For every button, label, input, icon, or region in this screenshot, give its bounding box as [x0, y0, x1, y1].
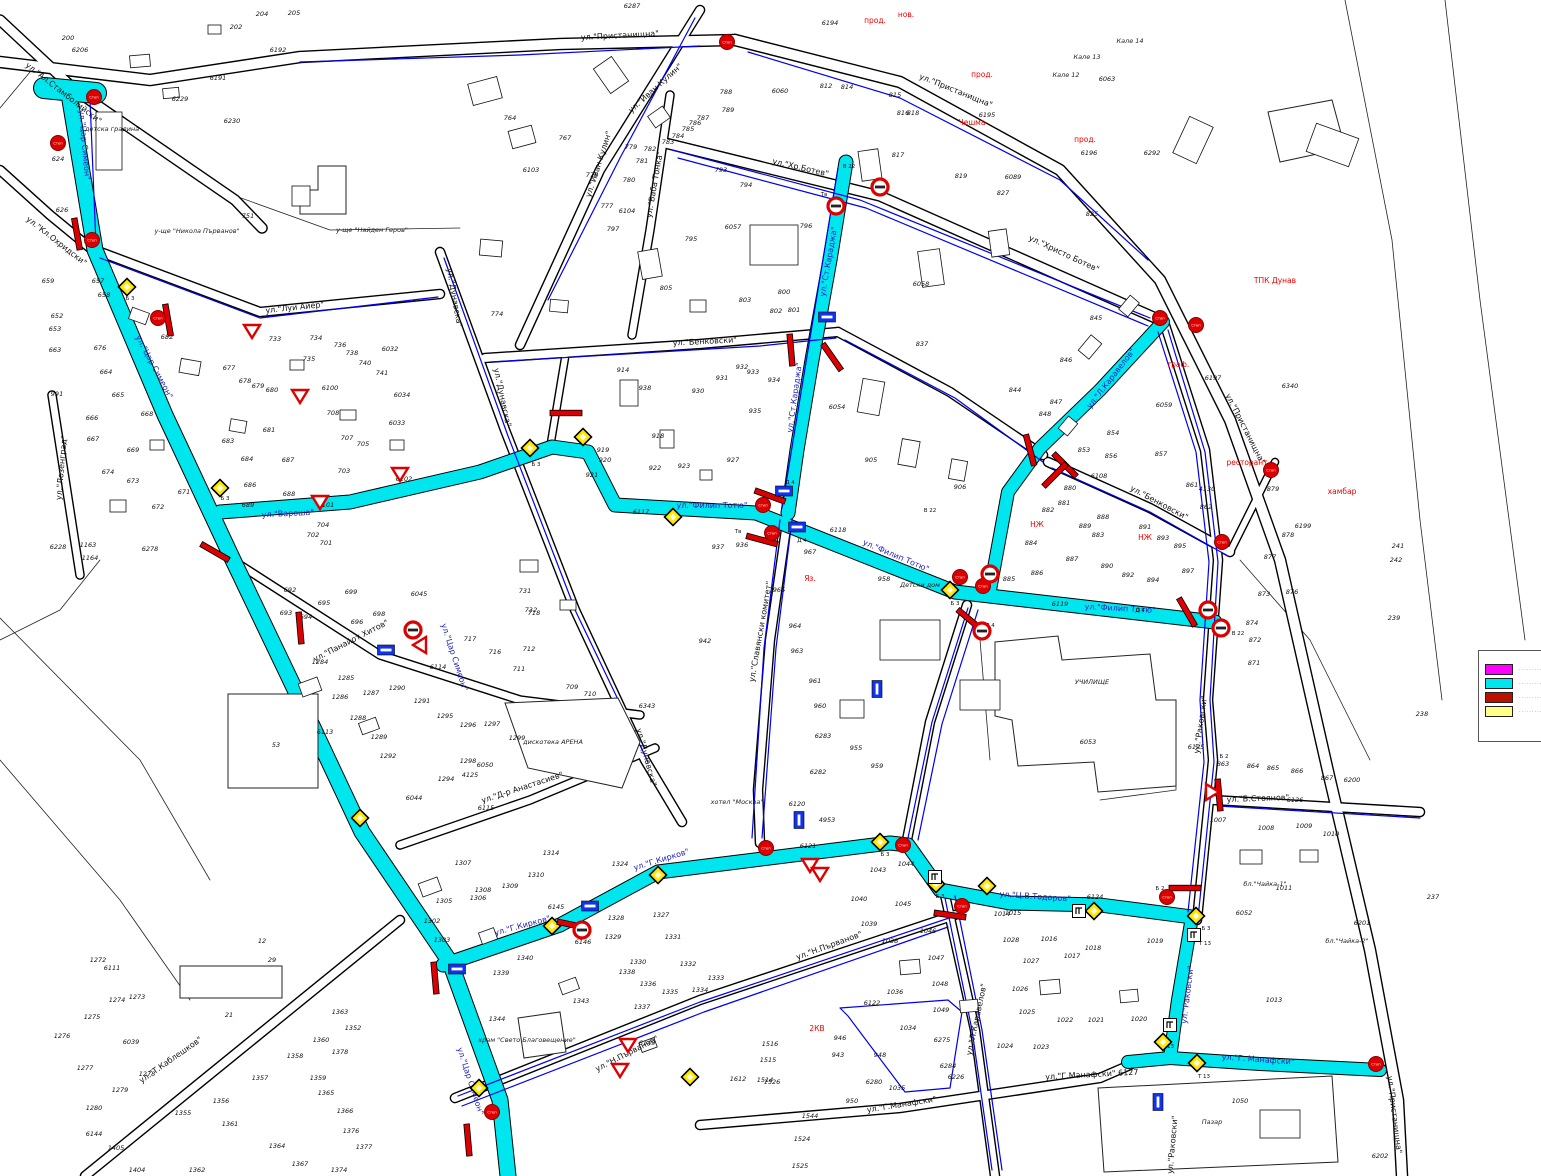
legend: ····· ··································… [1478, 650, 1541, 742]
building [858, 149, 882, 181]
parcel-number-label: 880 [1064, 484, 1076, 492]
parcel-number-label: 6124 [1087, 893, 1104, 901]
parcel-number-label: 6191 [210, 74, 227, 82]
parcel-number-label: 689 [242, 501, 254, 509]
parcel-number-label: 6115 [478, 804, 495, 812]
parcel-number-label: 865 [1267, 764, 1279, 772]
parcel-number-label: 21 [225, 1011, 233, 1019]
parcel-number-label: 734 [310, 334, 322, 342]
parcel-number-label: 6044 [406, 794, 423, 802]
legend-item: ············· [1485, 664, 1541, 675]
parcel-number-label: 780 [623, 176, 635, 184]
building [898, 439, 920, 468]
sign-code-label: Б 3 [935, 894, 945, 900]
parcel-number-label: 6292 [1144, 149, 1161, 157]
parcel-number-label: 872 [1249, 636, 1261, 644]
yield-sign-icon [413, 637, 426, 653]
parcel-number-label: 6206 [72, 46, 89, 54]
parcel-number-label: 887 [1066, 555, 1079, 563]
parcel-number-label: 659 [42, 277, 54, 285]
parcel-number-label: 1404 [129, 1166, 146, 1174]
parcel-number-label: 789 [722, 106, 734, 114]
building [518, 1012, 566, 1058]
parcel-number-label: 818 [907, 109, 919, 117]
parcel-number-label: 1332 [680, 960, 697, 968]
stop-sign-icon: Стоп [1155, 316, 1165, 320]
parcel-number-label: 6058 [913, 280, 930, 288]
red-note-label: ресторант [1226, 458, 1268, 467]
parcel-number-label: 6228 [50, 543, 67, 551]
stop-sign-icon: Стоп [761, 846, 771, 850]
parcel-number-label: 733 [269, 335, 281, 343]
building [1260, 1110, 1300, 1138]
parcel-number-label: 1525 [792, 1162, 809, 1170]
parcel-number-label: 677 [223, 364, 236, 372]
parcel-number-label: 959 [871, 762, 883, 770]
parcel-number-label: 6034 [394, 391, 411, 399]
parcel-number-label: 817 [892, 151, 905, 159]
parcel-number-label: 946 [834, 1034, 846, 1042]
parcel-number-label: 1287 [363, 689, 380, 697]
parcel-number-label: 797 [607, 225, 620, 233]
parcel-number-label: 961 [809, 677, 821, 685]
parcel-number-label: 1025 [1019, 1008, 1036, 1016]
parcel-number-label: 6118 [830, 526, 847, 534]
sign-code-label: Б 3 [531, 462, 541, 468]
parcel-number-label: 6054 [829, 403, 846, 411]
parcel-number-label: 237 [1427, 893, 1440, 901]
parcel-number-label: 1288 [350, 714, 367, 722]
parcel-number-label: 930 [692, 387, 704, 395]
parcel-number-label: 6199 [1295, 522, 1312, 530]
legend-swatch [1485, 706, 1513, 717]
red-note-label: НЖ [1138, 533, 1152, 542]
parcel-number-label: 802 [770, 307, 782, 315]
parcel-number-label: 862 [1200, 503, 1212, 511]
parcel-number-label: 1515 [760, 1056, 777, 1064]
parcel-number-label: 710 [584, 690, 596, 698]
stop-sign-icon: Стоп [957, 904, 967, 908]
building [840, 700, 864, 718]
parcel-number-label: 709 [566, 683, 578, 691]
parcel-number-label: 6104 [619, 207, 636, 215]
building [130, 54, 151, 68]
stop-sign-icon: Стоп [1191, 323, 1201, 327]
parcel-number-label: 6033 [389, 419, 406, 427]
parcel-number-label: 1544 [802, 1112, 819, 1120]
one-way-sign-icon [822, 316, 833, 319]
parcel-number-label: 1328 [608, 914, 625, 922]
parcel-number-label: 801 [788, 306, 800, 314]
building [479, 239, 502, 257]
parcel-number-label: 1377 [356, 1143, 373, 1151]
building [340, 410, 356, 420]
stop-sign-icon: Стоп [487, 1110, 497, 1114]
parcel-number-label: 6201 [1354, 919, 1371, 927]
parcel-number-label: 202 [230, 23, 242, 31]
road [550, 358, 565, 448]
map-svg: 2006206204205202623062297516246266192619… [0, 0, 1541, 1176]
sign-code-label: Д 4 [1135, 608, 1145, 614]
parcel-number-label: 4125 [462, 771, 479, 779]
parcel-number-label: 1298 [460, 757, 477, 765]
street-name-label: ул."Иван Кулин" [627, 62, 684, 115]
legend-swatch [1485, 678, 1513, 689]
parcel-number-label: 6063 [1099, 75, 1116, 83]
red-note-label: прод. [1074, 135, 1096, 144]
parcel-number-label: 1039 [861, 920, 878, 928]
parcel-number-label: 906 [954, 483, 966, 491]
parcel-number-label: 805 [660, 284, 672, 292]
parcel-number-label: 672 [152, 503, 164, 511]
stop-sign-icon: Стоп [978, 584, 988, 588]
parcel-number-label: 665 [112, 391, 124, 399]
parcel-number-label: 716 [489, 648, 501, 656]
parcel-number-label: 205 [288, 9, 300, 17]
parcel-number-label: 864 [1247, 762, 1259, 770]
poi-label: Пазар [1202, 1118, 1222, 1126]
parcel-number-label: 751 [242, 212, 254, 220]
closure-bar-icon [464, 1124, 472, 1156]
parcel-number-label: 703 [338, 467, 350, 475]
parcel-number-label: 878 [1282, 531, 1294, 539]
parcel-number-label: 967 [804, 548, 817, 556]
road [485, 332, 838, 358]
building [995, 636, 1176, 792]
parcel-number-label: 1035 [889, 1084, 906, 1092]
parcel-number-label: 1367 [292, 1160, 309, 1168]
parcel-number-label: 788 [720, 88, 732, 96]
parcel-number-label: 6039 [123, 1038, 140, 1046]
parcel-number-label: 1358 [287, 1052, 304, 1060]
building [1039, 979, 1060, 995]
legend-item: ············· [1485, 678, 1541, 689]
stop-sign-icon: Стоп [1217, 540, 1227, 544]
parcel-number-label: 1010 [1323, 830, 1340, 838]
parcel-number-label: 1405 [108, 1144, 125, 1152]
parcel-number-label: 1356 [213, 1097, 230, 1105]
one-way-sign-icon [452, 968, 463, 971]
building [418, 877, 442, 897]
one-way-sign-icon [798, 815, 801, 826]
parcel-number-label: 1366 [337, 1107, 354, 1115]
parcel-number-label: 669 [127, 446, 139, 454]
parcel-number-label: 673 [127, 477, 139, 485]
parcel-number-label: 657 [92, 277, 105, 285]
parcel-number-label: 871 [1248, 659, 1260, 667]
parcel-number-label: 1526 [764, 1078, 781, 1086]
parcel-number-label: 1043 [870, 866, 887, 874]
one-way-sign-icon [1157, 1097, 1160, 1108]
parcel-number-label: 1327 [653, 911, 670, 919]
parcel-number-label: 888 [1097, 513, 1109, 521]
parcel-number-label: 1021 [1088, 1016, 1105, 1024]
parcel-number-label: 795 [685, 235, 697, 243]
street-name-label: ул."Филип Тотю" [676, 501, 747, 510]
parcel-number-label: 711 [513, 665, 525, 673]
parcel-number-label: 1272 [90, 956, 107, 964]
poi-label: хотел "Москва" [710, 798, 764, 806]
stop-sign-icon: Стоп [153, 316, 163, 320]
parcel-number-label: 1365 [318, 1089, 335, 1097]
sign-code-label: В 22 [1232, 631, 1245, 637]
parcel-number-label: 6120 [789, 800, 806, 808]
parcel-number-label: 696 [351, 618, 363, 626]
parcel-number-label: 1045 [895, 900, 912, 908]
parcel-number-label: 6196 [1081, 149, 1098, 157]
parcel-number-label: 965 [773, 586, 785, 594]
parcel-number-label: 1294 [438, 775, 455, 783]
parcel-number-label: 717 [464, 635, 477, 643]
parcel-number-label: 1360 [313, 1036, 330, 1044]
parcel-number-label: 1046 [920, 927, 937, 935]
parcel-number-label: 933 [747, 368, 759, 376]
parcel-number-label: 814 [841, 83, 853, 91]
no-entry-sign-icon [1203, 609, 1213, 612]
parcel-number-label: 718 [528, 609, 540, 617]
stop-sign-icon: Стоп [53, 141, 63, 145]
building [560, 600, 576, 610]
stop-sign-icon: Стоп [898, 843, 908, 847]
parcel-number-label: 890 [1101, 562, 1113, 570]
parcel-number-label: 6053 [1080, 738, 1097, 746]
parcel-number-label: 1013 [1266, 996, 1283, 1004]
parcel-number-label: 1309 [502, 882, 519, 890]
parcel-number-label: 837 [916, 340, 929, 348]
building [508, 125, 536, 149]
parcel-number-label: 6052 [1236, 909, 1253, 917]
yield-sign-icon [292, 390, 308, 403]
parcel-number-label: 626 [56, 206, 68, 214]
parcel-number-label: 6117 [633, 508, 650, 516]
parcel-number-label: 1163 [80, 541, 97, 549]
parcel-number-label: 239 [1388, 614, 1400, 622]
parcel-number-label: 1305 [436, 897, 453, 905]
building [208, 25, 221, 34]
parcel-number-label: 1355 [175, 1109, 192, 1117]
red-note-label: прод. [864, 16, 886, 25]
parcel-number-label: 1277 [77, 1064, 94, 1072]
parcel-number-label: 707 [341, 434, 354, 442]
route-street [990, 322, 1163, 590]
parcel-number-label: 1314 [543, 849, 560, 857]
parcel-number-label: 679 [252, 382, 264, 390]
parcel-number-label: 845 [1090, 314, 1102, 322]
parcel-number-label: 1338 [619, 968, 636, 976]
parcel-number-label: 686 [244, 481, 256, 489]
parcel-number-label: 1295 [437, 712, 454, 720]
parcel-number-label: 653 [49, 325, 61, 333]
building [593, 56, 628, 93]
parcel-number-label: 881 [1058, 499, 1070, 507]
parcel-number-label: 1047 [928, 954, 945, 962]
building [750, 225, 798, 265]
closure-bar-icon [550, 410, 582, 416]
street-name-label: ул."Т.Каблешков" [137, 1035, 203, 1085]
parcel-number-label: 704 [317, 521, 329, 529]
parcel-number-label: 681 [263, 426, 275, 434]
no-entry-sign-icon [1216, 627, 1226, 630]
building [1173, 116, 1213, 163]
one-way-sign-icon [585, 905, 596, 908]
parcel-number-label: 1343 [573, 997, 590, 1005]
parcel-number-label: 1339 [493, 969, 510, 977]
legend-item: ············· [1485, 692, 1541, 703]
no-entry-sign-icon [577, 929, 587, 932]
parcel-number-label: 6060 [772, 87, 789, 95]
parcel-number-label: 877 [1264, 553, 1277, 561]
parcel-number-label: 6282 [810, 768, 827, 776]
parcel-number-label: 1307 [455, 859, 472, 867]
stop-sign-icon: Стоп [722, 40, 732, 44]
parcel-number-label: 6057 [725, 223, 742, 231]
parcel-number-label: 782 [644, 145, 656, 153]
building [150, 440, 164, 450]
poi-label: бл."Чайка-1" [1243, 880, 1286, 888]
parcel-number-label: 241 [1392, 542, 1404, 550]
building [899, 959, 920, 975]
parcel-number-label: 1276 [54, 1032, 71, 1040]
parcel-number-label: 1337 [634, 1003, 651, 1011]
parcel-number-label: 684 [241, 455, 253, 463]
red-note-label: траф. [1167, 360, 1190, 369]
parcel-number-label: 652 [51, 312, 63, 320]
parcel-number-label: 1344 [489, 1015, 506, 1023]
poi-label: у-ще "Найден Геров" [335, 226, 408, 234]
parcel-number-label: 1040 [851, 895, 868, 903]
map-canvas[interactable]: 2006206204205202623062297516246266192619… [0, 0, 1541, 1176]
parcel-number-label: 960 [814, 702, 826, 710]
parcel-number-label: 861 [1186, 481, 1198, 489]
parcel-number-label: 6032 [382, 345, 399, 353]
parcel-number-label: 687 [282, 456, 295, 464]
stop-sign-icon: Стоп [1371, 1062, 1381, 1066]
parcel-number-label: 1335 [662, 988, 679, 996]
poi-label: Кале 13 [1073, 53, 1100, 61]
parcel-number-label: 53 [272, 741, 280, 749]
parcel-number-label: 6114 [430, 663, 447, 671]
yield-sign-icon [244, 325, 260, 338]
parcel-number-label: 922 [649, 464, 661, 472]
sign-code-label: Б 3 [220, 496, 230, 502]
parcel-number-label: 1516 [762, 1040, 779, 1048]
one-way-sign-icon [381, 649, 392, 652]
building [292, 186, 310, 206]
building [1078, 335, 1102, 359]
parcel-number-label: 6119 [1052, 600, 1069, 608]
parcel-number-label: 920 [599, 456, 611, 464]
parcel-number-label: 1376 [343, 1127, 360, 1135]
parcel-number-label: 848 [1039, 410, 1051, 418]
parcel-number-label: 874 [1246, 619, 1258, 627]
parcel-number-label: 6108 [1091, 472, 1108, 480]
parcel-number-label: 664 [100, 368, 112, 376]
sign-code-label: Б 2 [1219, 754, 1228, 760]
parcel-number-label: 6194 [822, 19, 839, 27]
parcel-number-label: 1292 [380, 752, 397, 760]
no-entry-sign-icon [875, 186, 885, 189]
parcel-number-label: 1049 [933, 1006, 950, 1014]
parcel-boundary-line [1345, 0, 1442, 700]
parcel-number-label: 923 [678, 462, 690, 470]
building [638, 248, 663, 279]
parcel-number-label: 693 [280, 609, 292, 617]
building [558, 977, 579, 994]
parcel-number-label: 676 [94, 344, 106, 352]
parcel-number-label: 671 [178, 488, 190, 496]
parcel-number-label: 857 [1155, 450, 1168, 458]
parcel-number-label: 1015 [1005, 909, 1022, 917]
parcel-number-label: 793 [715, 166, 727, 174]
parcel-number-label: 774 [491, 310, 503, 318]
parcel-number-label: 667 [87, 435, 100, 443]
sign-code-label: Б 3 [950, 601, 960, 607]
parcel-number-label: 931 [716, 374, 728, 382]
legend-header: ····· [1485, 655, 1541, 661]
parcel-number-label: 1016 [1041, 935, 1058, 943]
parcel-number-label: 943 [832, 1051, 844, 1059]
parcel-number-label: 1022 [1057, 1016, 1074, 1024]
parcel-number-label: 678 [239, 377, 251, 385]
poi-label: храм "Свето Благовещение" [477, 1036, 576, 1044]
parcel-number-label: 827 [997, 189, 1010, 197]
parcel-number-label: 892 [1122, 571, 1134, 579]
red-note-label: 2КВ [809, 1024, 824, 1033]
parcel-number-label: 942 [699, 637, 711, 645]
parcel-number-label: 803 [739, 296, 751, 304]
poi-label: Кале 12 [1052, 71, 1079, 79]
parcel-number-label: 938 [639, 384, 651, 392]
parcel-number-label: 6059 [1156, 401, 1173, 409]
parcel-number-label: 680 [266, 386, 278, 394]
stop-sign-icon: Стоп [87, 238, 97, 242]
parcel-number-label: 1286 [332, 693, 349, 701]
parcel-number-label: 6045 [411, 590, 428, 598]
parcel-number-label: 1028 [1003, 936, 1020, 944]
parcel-number-label: 800 [778, 288, 790, 296]
parcel-number-label: 1279 [112, 1086, 129, 1094]
parcel-number-label: 1524 [794, 1135, 811, 1143]
parcel-number-label: 1331 [665, 933, 682, 941]
yield-sign-icon [812, 868, 828, 881]
building [960, 680, 1000, 710]
legend-label: ············· [1519, 667, 1541, 673]
sign-code-label: Д 4 [785, 480, 795, 486]
building [700, 470, 712, 480]
parcel-number-label: 1034 [900, 1024, 917, 1032]
parcel-number-label: 1274 [109, 996, 126, 1004]
parcel-number-label: 1357 [252, 1074, 269, 1082]
parcel-number-label: 6121 [800, 842, 817, 850]
parcel-number-label: 699 [345, 588, 357, 596]
parcel-number-label: 1019 [1147, 937, 1164, 945]
parcel-number-label: 1352 [345, 1024, 362, 1032]
building [880, 620, 940, 660]
sign-code-label: Б 3 [880, 852, 890, 858]
red-note-label: Чешма [959, 118, 986, 127]
building [1240, 850, 1262, 864]
parcel-number-label: 1330 [630, 958, 647, 966]
parcel-number-label: 6200 [1344, 776, 1361, 784]
parcel-number-label: 1302 [424, 917, 441, 925]
parcel-number-label: 1007 [1210, 816, 1227, 824]
parcel-number-label: 695 [318, 599, 330, 607]
parcel-number-label: 873 [1258, 590, 1270, 598]
parcel-number-label: 1336 [640, 980, 657, 988]
parcel-number-label: 238 [1416, 710, 1428, 718]
red-note-label: прод. [971, 70, 993, 79]
stop-sign-icon: Стоп [758, 503, 768, 507]
